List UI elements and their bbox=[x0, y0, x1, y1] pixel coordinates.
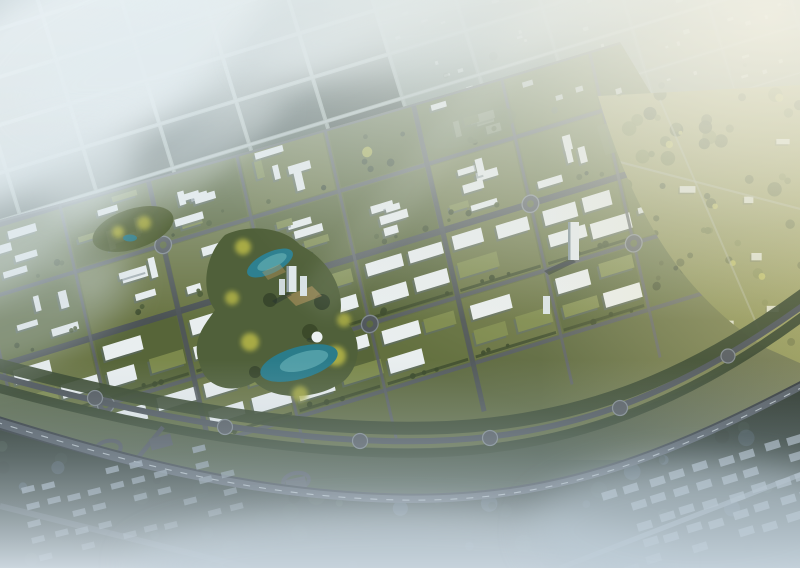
masterplan-rendering-image bbox=[0, 0, 800, 568]
sun-glow-overlay bbox=[0, 0, 800, 568]
rendering-canvas bbox=[0, 0, 800, 568]
